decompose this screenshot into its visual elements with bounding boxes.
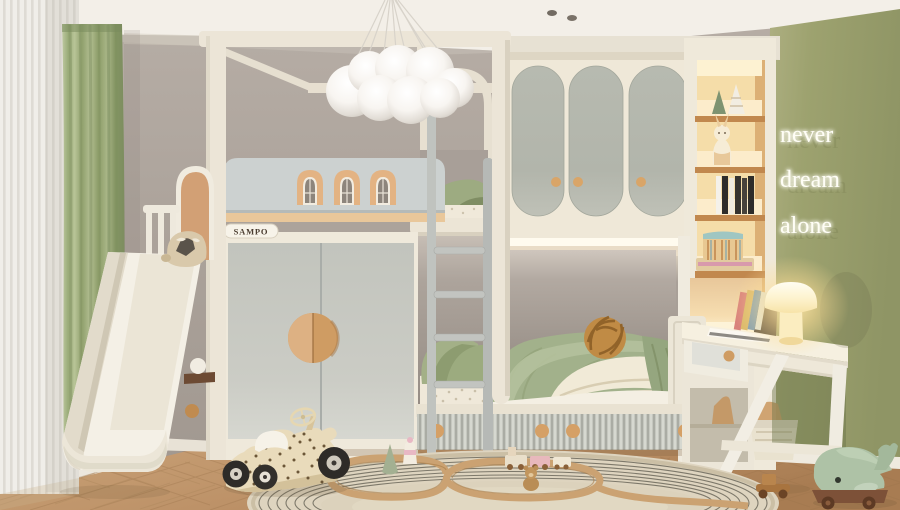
svg-text:alone: alone: [780, 213, 832, 239]
svg-text:dream: dream: [780, 167, 840, 193]
svg-text:SAMPO: SAMPO: [234, 227, 269, 237]
svg-text:never: never: [780, 122, 833, 148]
